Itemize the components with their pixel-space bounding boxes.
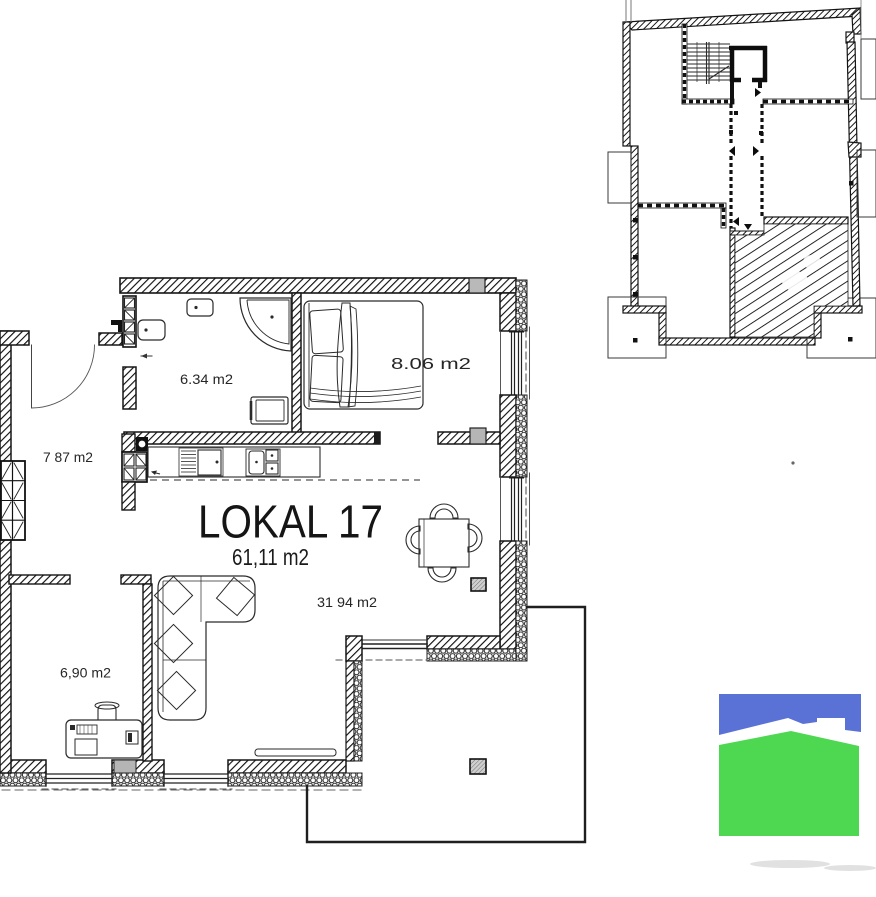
svg-text:6,90 m2: 6,90 m2 [60,665,111,681]
svg-text:6.34 m2: 6.34 m2 [180,371,233,387]
svg-text:31 94 m2: 31 94 m2 [317,594,377,610]
svg-text:8.06 m2: 8.06 m2 [391,356,471,373]
svg-text:LOKAL 17: LOKAL 17 [198,496,383,548]
svg-text:61,11 m2: 61,11 m2 [232,544,309,570]
svg-text:7 87 m2: 7 87 m2 [43,449,93,465]
